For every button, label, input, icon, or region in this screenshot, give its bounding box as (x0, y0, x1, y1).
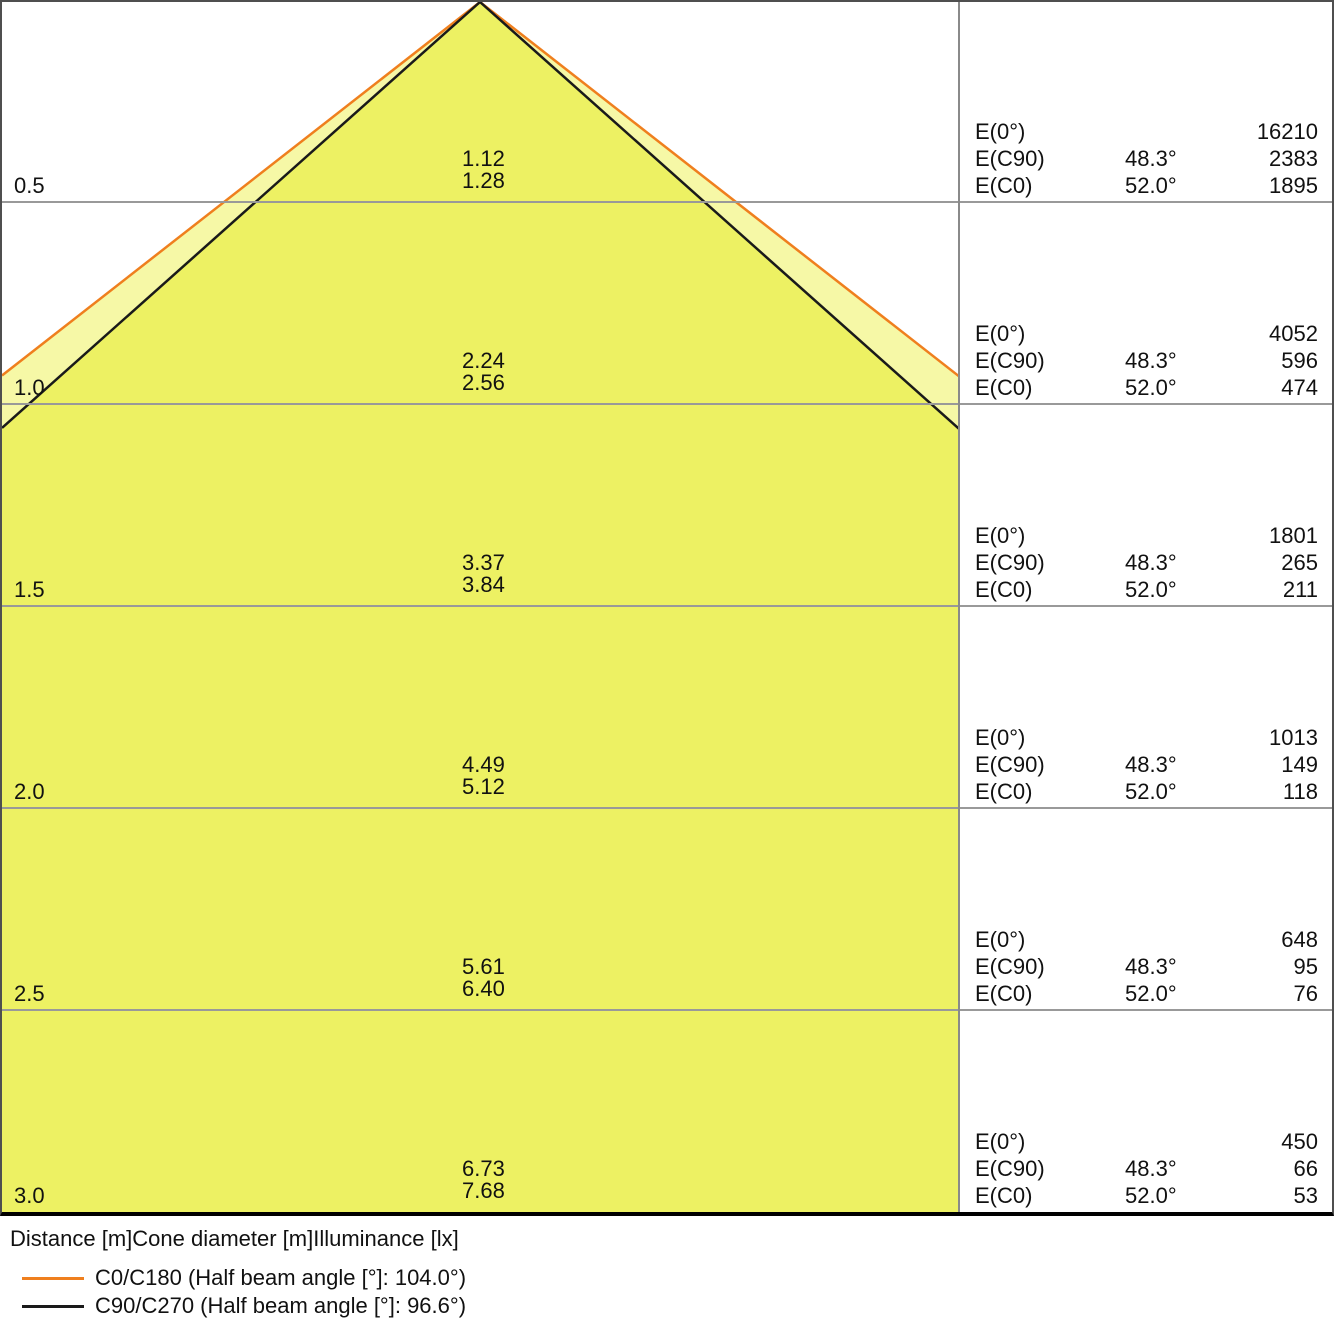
e0-row: E(0°) 4052 (960, 320, 1332, 347)
ec0-angle: 52.0° (1125, 980, 1294, 1007)
ec0-label: E(C0) (975, 374, 1125, 401)
gridline-2.0m (2, 807, 1332, 809)
cone-diameter-c90: 5.61 (462, 956, 505, 978)
e0-row: E(0°) 16210 (960, 118, 1332, 145)
column-headers-label: Distance [m]Cone diameter [m]Illuminance… (10, 1227, 459, 1251)
cone-diameter-labels: 5.61 6.40 (462, 956, 505, 1000)
cone-diameter-c0: 6.40 (462, 978, 505, 1000)
gridline-2.5m (2, 1009, 1332, 1011)
ec0-label: E(C0) (975, 1182, 1125, 1209)
ec90-angle: 48.3° (1125, 145, 1269, 172)
ec0-angle: 52.0° (1125, 576, 1283, 603)
ec0-angle: 52.0° (1125, 778, 1283, 805)
illuminance-block: E(0°) 1801 E(C90) 48.3° 265 E(C0) 52.0° … (960, 522, 1332, 603)
cone-diameter-c0: 1.28 (462, 170, 505, 192)
light-cone-diagram-page: 0.5 1.0 1.5 2.0 2.5 3.0 1.12 1.28 2.24 2… (0, 0, 1334, 1334)
ec0-label: E(C0) (975, 172, 1125, 199)
ec0-value: 474 (1281, 374, 1318, 401)
gridline-1.5m (2, 605, 1332, 607)
ec90-angle: 48.3° (1125, 751, 1281, 778)
cone-diameter-c90: 2.24 (462, 350, 505, 372)
e0-label: E(0°) (975, 118, 1125, 145)
e0-label: E(0°) (975, 724, 1125, 751)
legend-line-c0-icon (22, 1277, 84, 1280)
e0-row: E(0°) 450 (960, 1128, 1332, 1155)
ec0-row: E(C0) 52.0° 118 (960, 778, 1332, 805)
ec0-row: E(C0) 52.0° 76 (960, 980, 1332, 1007)
ec0-label: E(C0) (975, 778, 1125, 805)
e0-label: E(0°) (975, 926, 1125, 953)
e0-row: E(0°) 1013 (960, 724, 1332, 751)
ec90-label: E(C90) (975, 751, 1125, 778)
cone-diameter-c0: 7.68 (462, 1180, 505, 1202)
ec90-row: E(C90) 48.3° 149 (960, 751, 1332, 778)
cone-diameter-c0: 5.12 (462, 776, 505, 798)
ec90-label: E(C90) (975, 549, 1125, 576)
ec0-label: E(C0) (975, 980, 1125, 1007)
e0-label: E(0°) (975, 320, 1125, 347)
ec0-angle: 52.0° (1125, 374, 1281, 401)
legend-label-c90: C90/C270 (Half beam angle [°]: 96.6°) (95, 1294, 466, 1318)
distance-label: 0.5 (14, 174, 45, 198)
ec0-value: 76 (1294, 980, 1318, 1007)
cone-diameter-labels: 4.49 5.12 (462, 754, 505, 798)
ec90-value: 66 (1294, 1155, 1318, 1182)
e0-label: E(0°) (975, 1128, 1125, 1155)
ec0-angle: 52.0° (1125, 172, 1269, 199)
distance-label: 1.0 (14, 376, 45, 400)
ec90-label: E(C90) (975, 953, 1125, 980)
ec90-row: E(C90) 48.3° 95 (960, 953, 1332, 980)
legend-label-c0: C0/C180 (Half beam angle [°]: 104.0°) (95, 1266, 466, 1290)
ec90-angle: 48.3° (1125, 1155, 1294, 1182)
ec90-angle: 48.3° (1125, 953, 1294, 980)
distance-label: 2.0 (14, 780, 45, 804)
cone-diameter-c90: 4.49 (462, 754, 505, 776)
cone-diameter-c90: 6.73 (462, 1158, 505, 1180)
ec0-row: E(C0) 52.0° 1895 (960, 172, 1332, 199)
legend-line-c90-icon (22, 1305, 84, 1308)
ec90-row: E(C90) 48.3° 265 (960, 549, 1332, 576)
cone-diameter-labels: 6.73 7.68 (462, 1158, 505, 1202)
cone-diameter-labels: 2.24 2.56 (462, 350, 505, 394)
ec90-label: E(C90) (975, 145, 1125, 172)
gridline-0.5m (2, 201, 1332, 203)
ec90-label: E(C90) (975, 347, 1125, 374)
e0-value: 450 (1281, 1128, 1318, 1155)
ec0-row: E(C0) 52.0° 53 (960, 1182, 1332, 1209)
cone-diameter-c90: 1.12 (462, 148, 505, 170)
distance-label: 2.5 (14, 982, 45, 1006)
e0-value: 648 (1281, 926, 1318, 953)
ec0-value: 1895 (1269, 172, 1318, 199)
illuminance-block: E(0°) 450 E(C90) 48.3° 66 E(C0) 52.0° 53 (960, 1128, 1332, 1209)
ec90-label: E(C90) (975, 1155, 1125, 1182)
ec90-value: 2383 (1269, 145, 1318, 172)
cone-diameter-c0: 2.56 (462, 372, 505, 394)
distance-label: 1.5 (14, 578, 45, 602)
distance-label: 3.0 (14, 1184, 45, 1208)
ec0-value: 118 (1283, 778, 1318, 805)
ec90-value: 95 (1294, 953, 1318, 980)
ec90-angle: 48.3° (1125, 549, 1281, 576)
e0-value: 16210 (1257, 118, 1318, 145)
ec90-row: E(C90) 48.3° 66 (960, 1155, 1332, 1182)
ec0-value: 53 (1294, 1182, 1318, 1209)
cone-diameter-labels: 1.12 1.28 (462, 148, 505, 192)
ec90-row: E(C90) 48.3° 596 (960, 347, 1332, 374)
ec90-value: 265 (1281, 549, 1318, 576)
e0-row: E(0°) 648 (960, 926, 1332, 953)
e0-row: E(0°) 1801 (960, 522, 1332, 549)
illuminance-block: E(0°) 648 E(C90) 48.3° 95 E(C0) 52.0° 76 (960, 926, 1332, 1007)
ec0-angle: 52.0° (1125, 1182, 1294, 1209)
ec90-angle: 48.3° (1125, 347, 1281, 374)
cone-diameter-labels: 3.37 3.84 (462, 552, 505, 596)
ec0-row: E(C0) 52.0° 211 (960, 576, 1332, 603)
ec0-label: E(C0) (975, 576, 1125, 603)
ec90-value: 149 (1281, 751, 1318, 778)
illuminance-block: E(0°) 16210 E(C90) 48.3° 2383 E(C0) 52.0… (960, 118, 1332, 199)
e0-value: 1801 (1269, 522, 1318, 549)
ec0-value: 211 (1283, 576, 1318, 603)
illuminance-block: E(0°) 1013 E(C90) 48.3° 149 E(C0) 52.0° … (960, 724, 1332, 805)
cone-diameter-c0: 3.84 (462, 574, 505, 596)
illuminance-block: E(0°) 4052 E(C90) 48.3° 596 E(C0) 52.0° … (960, 320, 1332, 401)
cone-diameter-c90: 3.37 (462, 552, 505, 574)
e0-value: 4052 (1269, 320, 1318, 347)
ec0-row: E(C0) 52.0° 474 (960, 374, 1332, 401)
e0-value: 1013 (1269, 724, 1318, 751)
e0-label: E(0°) (975, 522, 1125, 549)
ec90-value: 596 (1281, 347, 1318, 374)
gridline-1.0m (2, 403, 1332, 405)
ec90-row: E(C90) 48.3° 2383 (960, 145, 1332, 172)
